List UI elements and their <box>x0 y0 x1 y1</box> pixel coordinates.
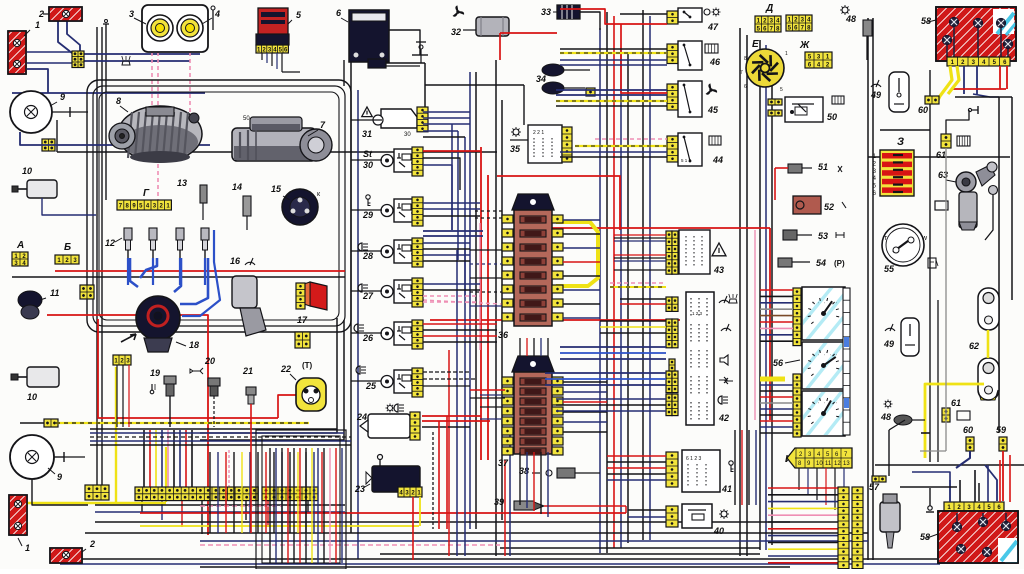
svg-text:19: 19 <box>150 368 160 378</box>
svg-text:5: 5 <box>780 87 783 93</box>
svg-text:16: 16 <box>230 256 241 266</box>
svg-text:39: 39 <box>494 497 504 507</box>
svg-text:27: 27 <box>362 291 374 301</box>
svg-text:49: 49 <box>883 339 894 349</box>
svg-text:9: 9 <box>60 92 65 102</box>
svg-text:35: 35 <box>510 144 521 154</box>
svg-text:11: 11 <box>825 461 832 467</box>
svg-text:10: 10 <box>22 166 32 176</box>
svg-text:50: 50 <box>827 112 837 122</box>
svg-text:3: 3 <box>129 9 134 19</box>
svg-text:61: 61 <box>951 398 961 408</box>
svg-text:13: 13 <box>843 461 850 467</box>
svg-text:4: 4 <box>214 9 220 19</box>
svg-text:Е: Е <box>752 39 759 50</box>
svg-text:59: 59 <box>996 425 1006 435</box>
svg-text:20: 20 <box>204 356 215 366</box>
svg-text:44: 44 <box>712 155 723 165</box>
svg-text:Г: Г <box>143 188 150 199</box>
svg-text:18: 18 <box>189 340 199 350</box>
svg-text:Д: Д <box>765 3 773 14</box>
svg-text:6: 6 <box>744 84 747 90</box>
svg-text:47: 47 <box>707 22 719 32</box>
svg-text:29: 29 <box>362 210 373 220</box>
svg-text:Б: Б <box>64 242 71 253</box>
svg-text:21: 21 <box>242 366 253 376</box>
svg-text:7: 7 <box>740 70 743 76</box>
svg-text:26: 26 <box>362 333 374 343</box>
svg-text:13: 13 <box>177 178 187 188</box>
svg-text:25: 25 <box>365 381 377 391</box>
svg-text:56: 56 <box>773 358 784 368</box>
svg-text:37: 37 <box>498 458 509 468</box>
svg-text:8: 8 <box>744 56 747 62</box>
svg-text:10: 10 <box>27 392 37 402</box>
svg-text:З: З <box>897 136 904 148</box>
svg-text:36: 36 <box>498 330 509 340</box>
svg-text:St: St <box>363 149 373 159</box>
svg-text:10: 10 <box>816 461 823 467</box>
svg-text:5 1 3: 5 1 3 <box>681 158 692 163</box>
svg-text:62: 62 <box>969 341 979 351</box>
svg-text:24: 24 <box>356 412 367 422</box>
svg-text:12: 12 <box>105 238 115 248</box>
svg-text:41: 41 <box>721 484 732 494</box>
svg-text:15: 15 <box>271 184 282 194</box>
svg-text:42: 42 <box>718 413 729 423</box>
svg-text:11: 11 <box>50 288 59 298</box>
svg-text:54: 54 <box>816 258 826 268</box>
svg-text:w: w <box>921 235 928 242</box>
svg-text:6 1 2 3: 6 1 2 3 <box>686 456 702 462</box>
svg-text:40: 40 <box>713 526 724 536</box>
svg-text:61: 61 <box>936 150 946 160</box>
svg-text:А: А <box>16 240 24 251</box>
svg-text:50: 50 <box>243 116 250 122</box>
svg-text:Ж: Ж <box>799 40 810 51</box>
svg-text:23: 23 <box>354 484 365 494</box>
svg-text:(Р): (Р) <box>834 259 845 268</box>
svg-text:46: 46 <box>709 57 721 67</box>
svg-text:30: 30 <box>404 132 411 138</box>
svg-text:12: 12 <box>834 461 841 467</box>
svg-text:48: 48 <box>845 14 856 24</box>
svg-text:(Т): (Т) <box>302 361 313 370</box>
svg-text:1: 1 <box>25 543 30 553</box>
svg-text:17: 17 <box>297 315 308 325</box>
svg-text:31: 31 <box>362 129 372 139</box>
svg-text:43: 43 <box>713 265 724 275</box>
svg-text:55: 55 <box>884 264 895 274</box>
svg-text:1 2 3: 1 2 3 <box>692 311 703 316</box>
svg-text:2 2 1: 2 2 1 <box>533 130 544 136</box>
svg-text:28: 28 <box>362 251 373 261</box>
svg-text:30: 30 <box>363 160 373 170</box>
svg-text:49: 49 <box>870 90 881 100</box>
svg-text:8: 8 <box>116 96 121 106</box>
svg-text:1: 1 <box>785 51 788 57</box>
svg-text:57: 57 <box>869 482 880 492</box>
svg-text:60: 60 <box>918 105 928 115</box>
svg-text:45: 45 <box>707 105 719 115</box>
svg-text:51: 51 <box>818 162 828 172</box>
svg-text:58: 58 <box>921 16 931 26</box>
svg-text:48: 48 <box>880 412 891 422</box>
svg-text:34: 34 <box>536 74 546 84</box>
svg-text:1: 1 <box>35 20 40 30</box>
svg-text:9: 9 <box>57 472 62 482</box>
svg-text:53: 53 <box>818 231 828 241</box>
svg-text:52: 52 <box>824 202 834 212</box>
svg-text:22: 22 <box>280 364 291 374</box>
svg-text:60: 60 <box>963 425 973 435</box>
svg-text:14: 14 <box>232 182 242 192</box>
svg-text:32: 32 <box>451 27 461 37</box>
svg-text:33: 33 <box>541 7 551 17</box>
svg-text:2: 2 <box>89 539 95 549</box>
